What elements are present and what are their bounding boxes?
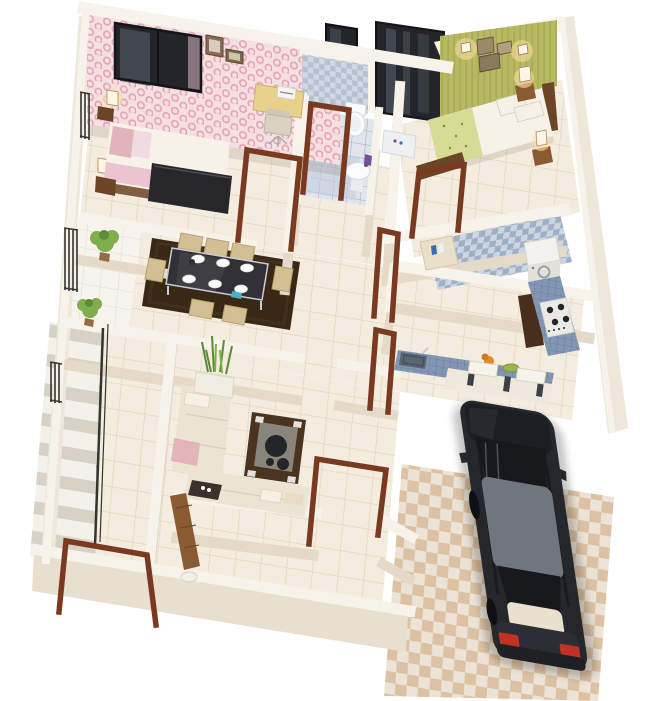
green-dish (503, 364, 519, 372)
isometric-house-svg (0, 0, 650, 701)
picture-frame-inner (209, 39, 220, 53)
burner (552, 319, 558, 325)
shampoo-bottle (364, 154, 372, 166)
railing-segment (80, 92, 90, 140)
mirrored-wardrobe (376, 22, 444, 122)
plate (209, 280, 222, 288)
sconce-shade (518, 44, 528, 55)
fruit (482, 354, 489, 361)
carafe (189, 259, 195, 265)
plate (241, 264, 254, 272)
picture-frame (477, 37, 494, 55)
plate (217, 259, 230, 267)
tv-unit (244, 412, 306, 484)
pink-throw (171, 438, 200, 466)
burner (563, 316, 569, 322)
bed-1-pillow (131, 130, 152, 159)
bed-1-pillow (109, 126, 135, 158)
stool (181, 572, 197, 582)
speaker-small (277, 458, 289, 470)
dining-chair (272, 266, 293, 292)
dining-chair (145, 258, 166, 282)
detergent-bottle (438, 243, 444, 253)
floor-plan-render (0, 0, 650, 701)
dining-chair (222, 305, 247, 325)
dining-chair (189, 299, 214, 319)
burner (558, 304, 564, 310)
sconce-shade (461, 42, 471, 53)
lamp-shade (107, 90, 118, 106)
plate (183, 275, 196, 283)
speaker-large (265, 435, 287, 457)
plate (235, 285, 248, 293)
burner (547, 307, 553, 313)
detergent-bottle (431, 245, 437, 255)
